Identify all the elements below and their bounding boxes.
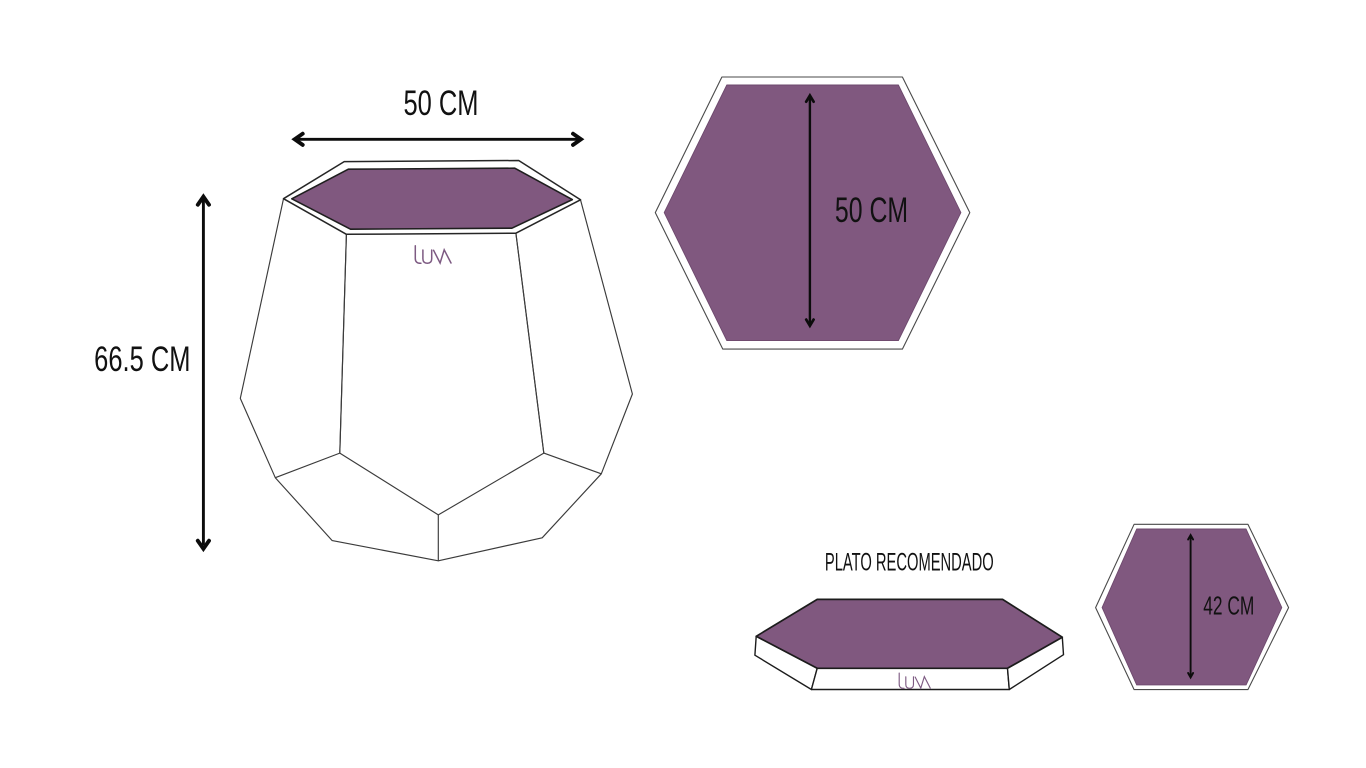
svg-text:66.5 CM: 66.5 CM: [94, 339, 190, 379]
svg-text:PLATO RECOMENDADO: PLATO RECOMENDADO: [825, 549, 994, 577]
svg-text:50 CM: 50 CM: [835, 192, 908, 230]
svg-text:50 CM: 50 CM: [403, 83, 478, 123]
svg-text:42 CM: 42 CM: [1203, 591, 1254, 621]
